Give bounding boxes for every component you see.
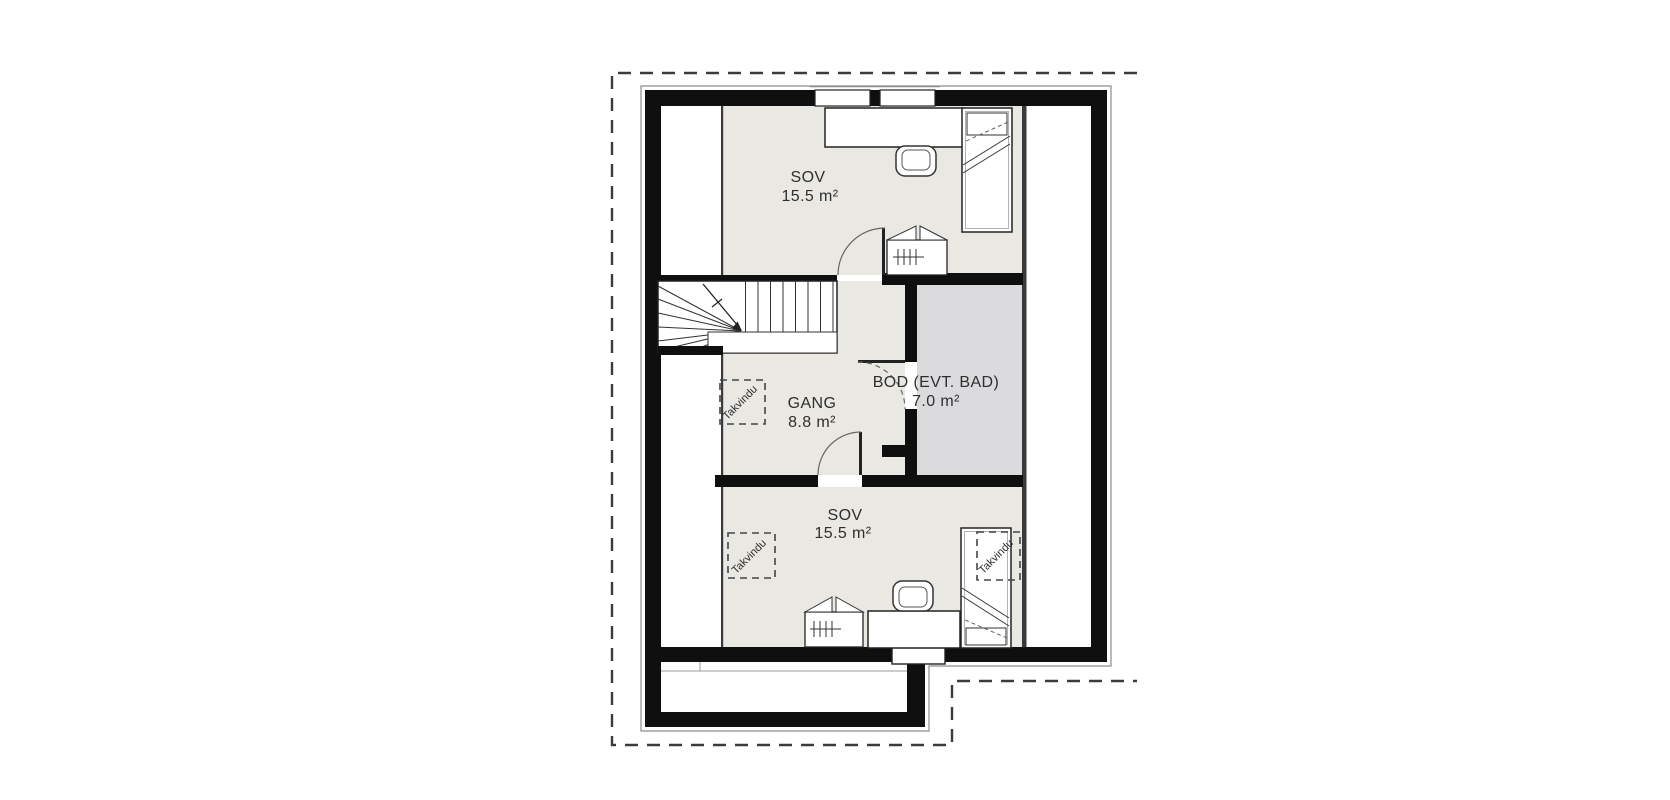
wall-gang-sov-right [862, 475, 1023, 487]
window-top-right [880, 90, 935, 106]
label-sov-bottom-name: SOV [828, 507, 863, 524]
wall-bottom-main [645, 647, 1107, 662]
knee-wall-left [721, 106, 723, 647]
chair-bottom [893, 581, 933, 611]
stair-bottom-wall-stub [658, 346, 723, 355]
label-gang-area: 8.8 m² [788, 414, 836, 431]
window-top-left [815, 90, 870, 106]
pillow-bottom-bed [966, 628, 1006, 645]
chair-top [896, 146, 936, 176]
bed-top [962, 108, 1012, 232]
label-bod-name: BOD (EVT. BAD) [873, 374, 1000, 391]
wall-top [645, 90, 1107, 106]
knee-wall-right [1022, 106, 1027, 647]
wall-extension-bottom [645, 712, 925, 727]
label-sov-bottom-area: 15.5 m² [814, 525, 871, 542]
label-gang-name: GANG [788, 395, 837, 412]
wall-left [645, 90, 661, 727]
wall-sov-top-stair [658, 275, 837, 281]
staircase [658, 281, 837, 355]
floor-plan-canvas: Takvindu Takvindu Takvindu SOV 15.5 m² G… [0, 0, 1670, 800]
extension-detail-lines [661, 662, 907, 671]
desk-top [825, 108, 963, 147]
wall-right [1091, 90, 1107, 662]
floor-plan-page: Takvindu Takvindu Takvindu SOV 15.5 m² G… [0, 0, 1670, 800]
wall-extension-right [907, 662, 925, 727]
wall-gang-sov-left [715, 475, 818, 487]
stair-landing [708, 332, 837, 353]
label-sov-top-area: 15.5 m² [781, 188, 838, 205]
wall-bod-left-upper [905, 285, 917, 362]
desk-bottom [868, 611, 960, 648]
wall-bod-stub [882, 445, 917, 457]
label-sov-top-name: SOV [791, 169, 826, 186]
label-bod-area: 7.0 m² [912, 393, 960, 410]
